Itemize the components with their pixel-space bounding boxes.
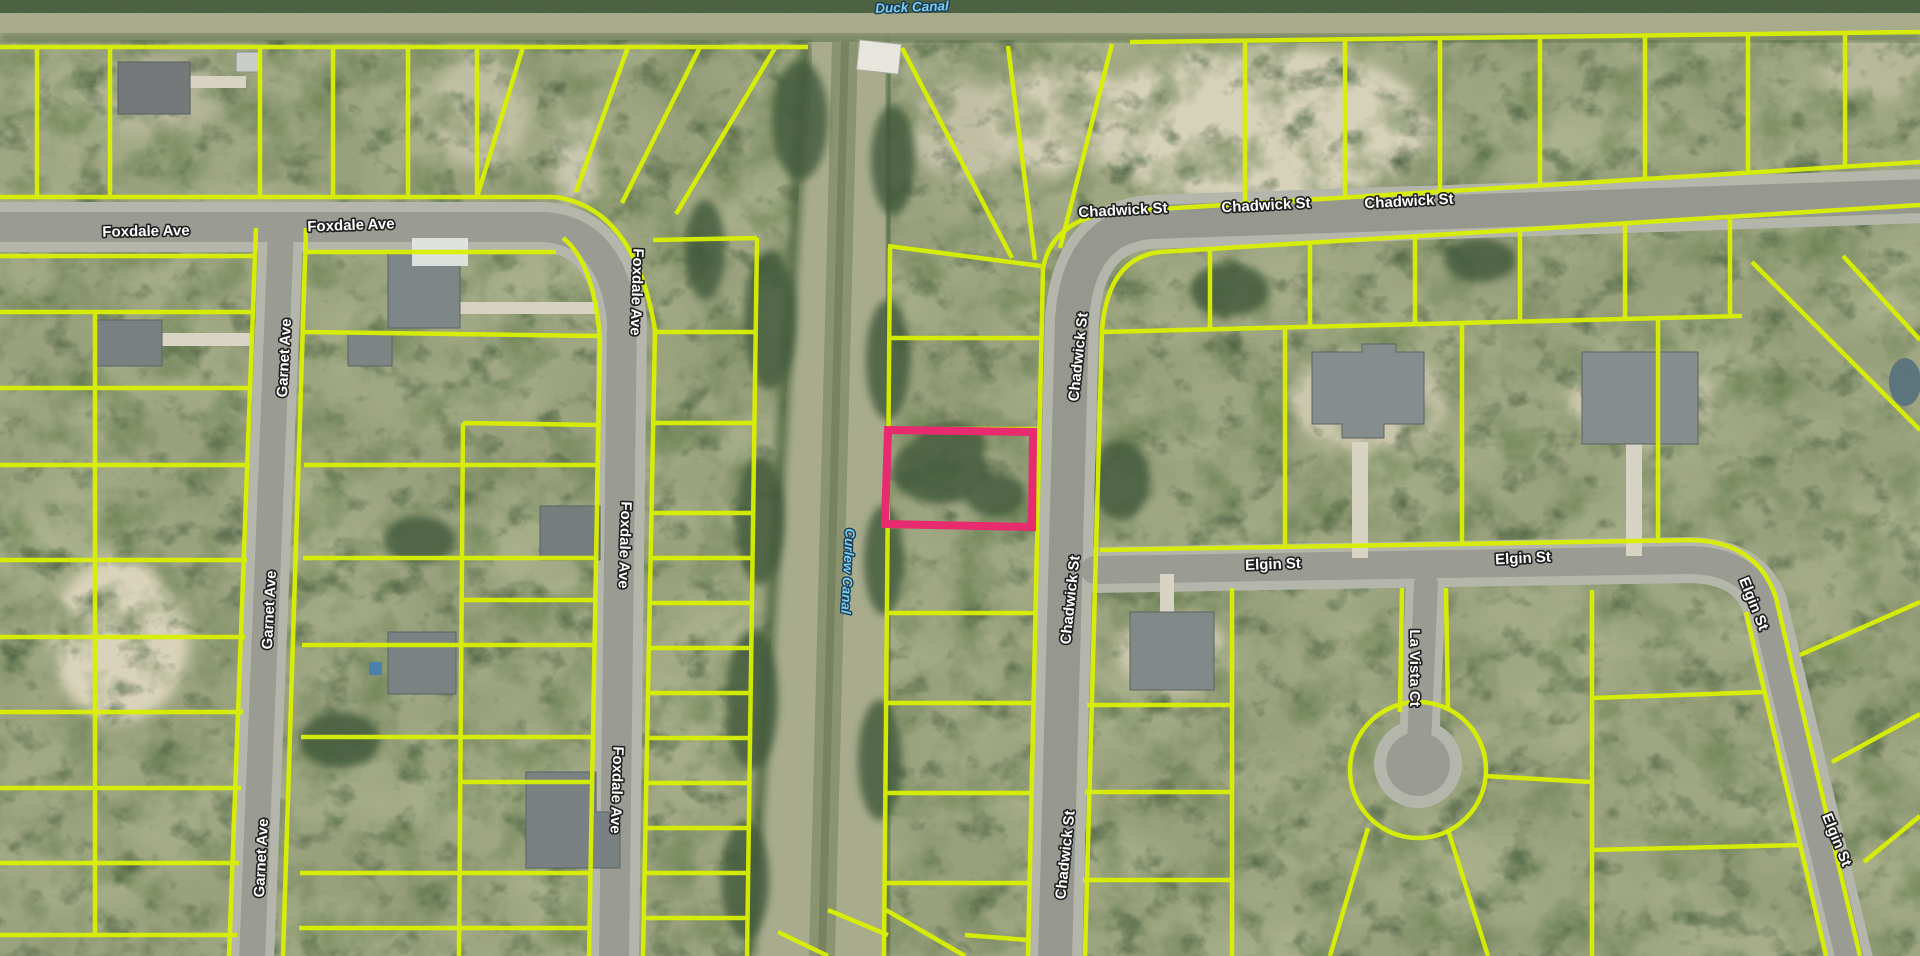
pool bbox=[369, 662, 382, 675]
house bbox=[1130, 612, 1214, 690]
street-label-elgin-st-1: Elgin St bbox=[1245, 555, 1301, 574]
driveway bbox=[460, 302, 598, 314]
street-label-foxdale-ave-1: Foxdale Ave bbox=[102, 222, 190, 241]
house bbox=[118, 62, 190, 114]
house bbox=[94, 320, 162, 366]
street-label-foxdale-ave-2: Foxdale Ave bbox=[307, 215, 395, 235]
driveway bbox=[1352, 442, 1368, 558]
driveway bbox=[188, 76, 246, 88]
house bbox=[1312, 344, 1424, 438]
canal-label-duck-canal: Duck Canal bbox=[875, 0, 949, 16]
street-label-foxdale-ave-v1: Foxdale Ave bbox=[627, 248, 647, 336]
street-label-foxdale-ave-v3: Foxdale Ave bbox=[607, 746, 627, 834]
house bbox=[348, 332, 392, 366]
cul-de-sac-pavement bbox=[1386, 732, 1450, 796]
street-label-la-vista-ct: La Vista Ct bbox=[1406, 629, 1423, 706]
aerial-map[interactable]: Foxdale AveFoxdale AveChadwick StChadwic… bbox=[0, 0, 1920, 956]
shed bbox=[236, 52, 260, 72]
house bbox=[1582, 352, 1698, 444]
driveway bbox=[162, 333, 252, 346]
house bbox=[540, 506, 600, 560]
driveway bbox=[1160, 574, 1174, 616]
street-label-foxdale-ave-v2: Foxdale Ave bbox=[615, 501, 635, 589]
shed bbox=[857, 40, 902, 74]
house bbox=[388, 632, 456, 694]
map-canvas[interactable]: Foxdale AveFoxdale AveChadwick StChadwic… bbox=[0, 0, 1920, 956]
street-label-elgin-st-2: Elgin St bbox=[1495, 549, 1552, 569]
pond bbox=[1889, 358, 1920, 406]
